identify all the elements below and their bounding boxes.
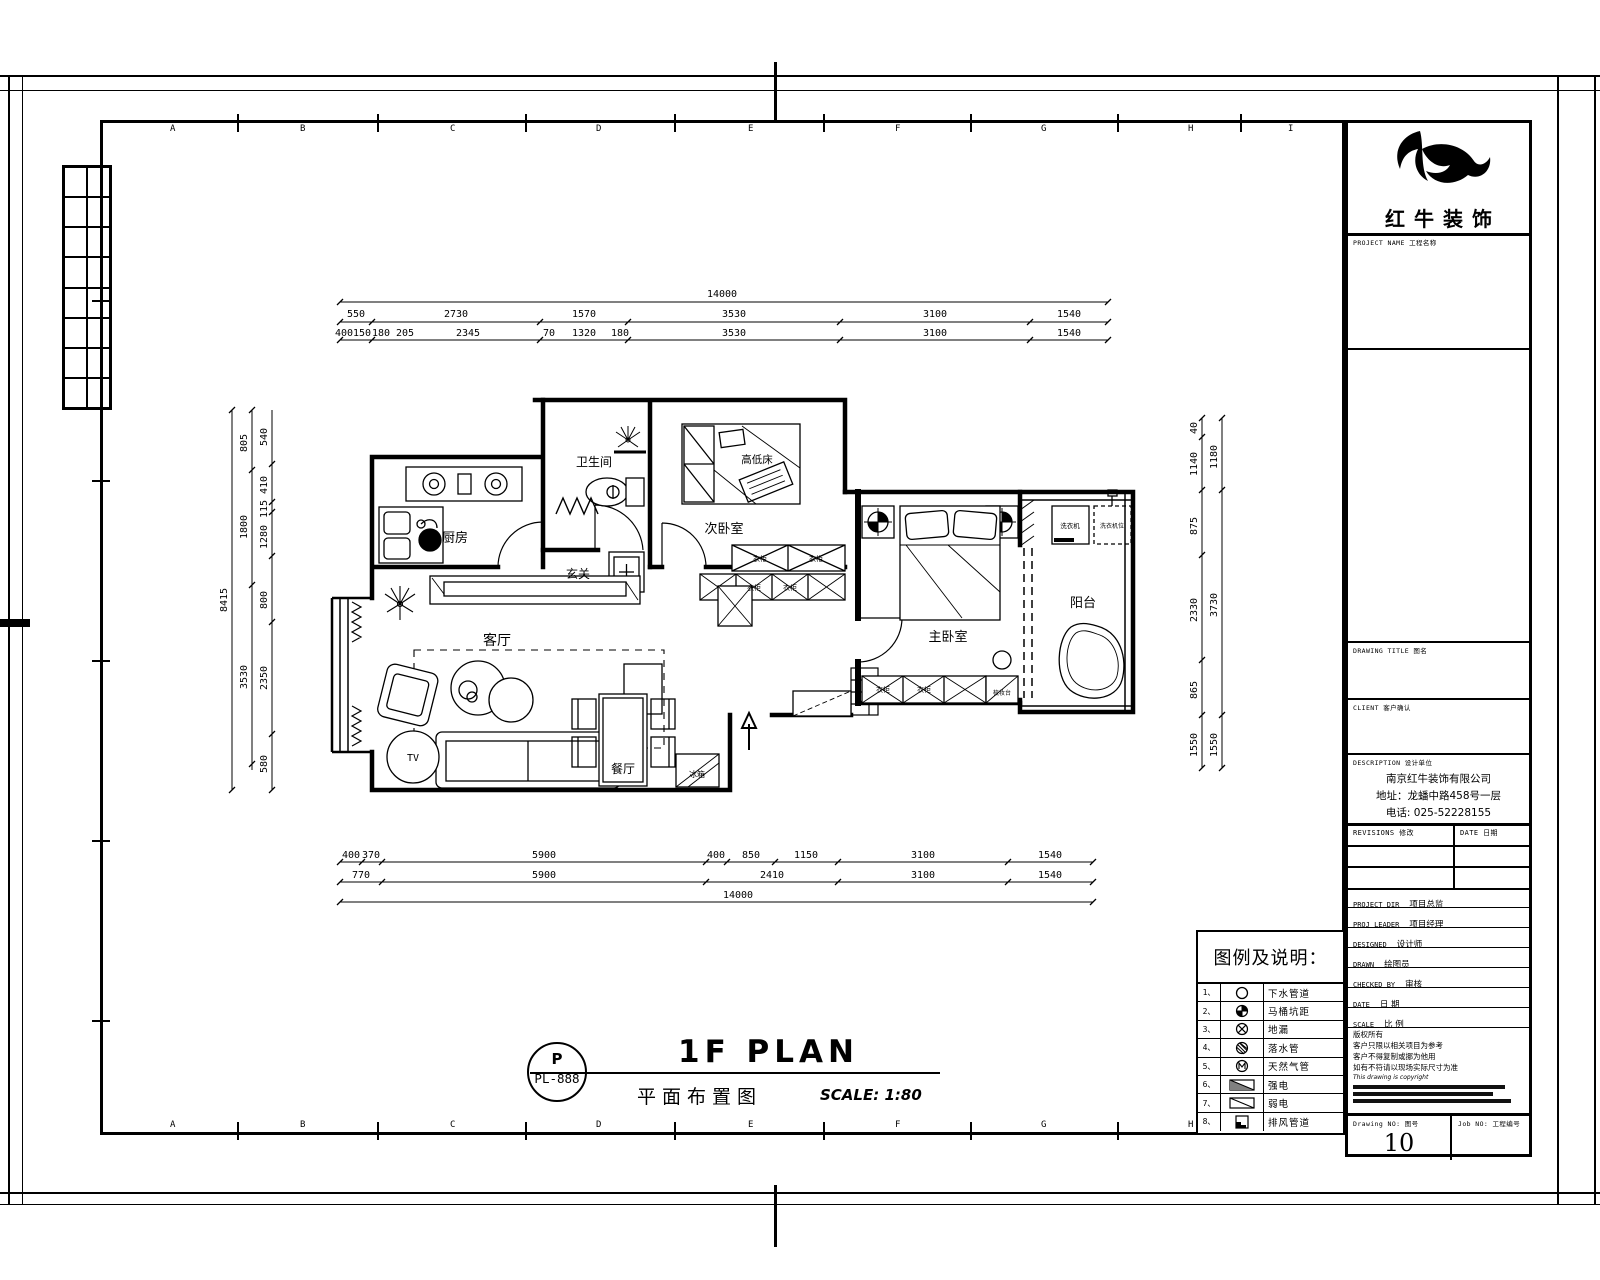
legend-row: 3、 地漏	[1198, 1021, 1343, 1039]
frame-tick	[237, 114, 239, 132]
company-logo-icon	[1380, 127, 1500, 199]
stove	[406, 467, 522, 501]
frame-tick	[674, 114, 676, 132]
dim-text: 2730	[444, 309, 468, 320]
furniture-label-bunk-bed: 高低床	[741, 453, 773, 466]
floor-plan-svg: 厨房 卫生间 玄关 次卧室 高低床 主卧室 阳台 客厅 餐厅 TV 冰箱 洗衣机…	[210, 280, 1270, 920]
trim-line-bottom-1	[0, 1192, 1600, 1194]
margin-stamp-cell	[87, 348, 110, 378]
dim-text: 2410	[760, 870, 784, 881]
legend-row-number: 3、	[1198, 1021, 1221, 1038]
room-label-bedroom2: 次卧室	[704, 521, 743, 537]
grid-letter-bottom: E	[748, 1120, 753, 1130]
copyright-redacted-line	[1353, 1092, 1493, 1096]
margin-stamp-cell	[64, 227, 87, 257]
grid-letter-top: A	[170, 124, 175, 134]
copyright-line-en: This drawing is copyright	[1353, 1074, 1529, 1083]
tb-description-label: DESCRIPTION 设计单位	[1353, 757, 1432, 767]
grid-letter-bottom: G	[1041, 1120, 1046, 1130]
shoe-cabinet	[718, 586, 752, 626]
plan-subtitle: 平面布置图	[637, 1082, 762, 1109]
info-row-en: SCALE	[1353, 1021, 1374, 1029]
title-block: 红牛装饰 PROJECT NAME 工程名称 DRAWING TITLE 图名 …	[1345, 120, 1532, 1157]
dim-text: 150	[353, 328, 371, 339]
trim-line-right-2	[1594, 75, 1596, 1205]
sofa	[436, 732, 620, 788]
dim-text: 14000	[707, 289, 737, 300]
margin-stamp-cell	[64, 167, 87, 197]
furniture-label-dresser: 梳妆台	[993, 689, 1011, 697]
grid-letter-top: H	[1188, 124, 1193, 134]
furniture	[376, 424, 1131, 788]
tb-project-name-label: PROJECT NAME 工程名称	[1353, 237, 1437, 247]
margin-stamp-cell	[87, 197, 110, 227]
dim-text: 14000	[723, 890, 753, 901]
grid-letter-top: E	[748, 124, 753, 134]
margin-stamp-cell	[87, 227, 110, 257]
room-label-dining: 餐厅	[611, 761, 635, 776]
frame-tick	[525, 1122, 527, 1140]
furniture-label-wardrobe: 衣柜	[747, 583, 761, 592]
center-mark-left	[0, 619, 30, 627]
frame-tick	[970, 1122, 972, 1140]
dim-text: 1540	[1057, 309, 1081, 320]
margin-stamp-cell	[87, 167, 110, 197]
tb-info-row: DESIGNED设计师	[1348, 928, 1529, 948]
frame-tick	[92, 1020, 110, 1022]
frame-tick	[823, 114, 825, 132]
trim-line-top-1	[0, 75, 1600, 77]
dim-text: 400	[335, 328, 353, 339]
margin-stamp-cell	[64, 197, 87, 227]
kitchen-sink	[379, 507, 443, 563]
frame-tick	[1240, 114, 1242, 132]
grid-letter-top: D	[596, 124, 601, 134]
plan-title: 1F PLAN	[678, 1034, 859, 1070]
margin-stamp-cell	[64, 318, 87, 348]
legend-row-label: 天然气管	[1264, 1059, 1343, 1073]
legend-row-label: 落水管	[1264, 1041, 1343, 1055]
downpipe-icon	[1221, 1039, 1264, 1056]
copyright-line: 客户只限以相关项目为参考	[1353, 1041, 1529, 1052]
grid-letter-bottom: A	[170, 1120, 175, 1130]
grid-letter-bottom: C	[450, 1120, 455, 1130]
legend-row-number: 5、	[1198, 1058, 1221, 1075]
frame-tick	[1117, 1122, 1119, 1140]
strong-electric-icon	[1221, 1076, 1264, 1093]
furniture-label-fridge: 冰箱	[689, 769, 705, 779]
legend-row: 6、 强电	[1198, 1076, 1343, 1094]
margin-stamp-cell	[87, 378, 110, 408]
furniture-label-tv: TV	[407, 753, 419, 764]
legend-row-label: 弱电	[1264, 1096, 1343, 1110]
legend-row-number: 1、	[1198, 984, 1221, 1001]
dim-text: 3530	[722, 328, 746, 339]
washing-machine	[1052, 490, 1131, 544]
legend-row-number: 6、	[1198, 1076, 1221, 1093]
dim-text: 400	[342, 850, 360, 861]
plan-scale: SCALE: 1:80	[820, 1086, 922, 1104]
dim-text: 2345	[456, 328, 480, 339]
lounge-chair	[1059, 624, 1124, 699]
legend-row: 5、 天然气管	[1198, 1058, 1343, 1076]
furniture-label-wardrobe: 衣柜	[753, 554, 767, 563]
center-mark-top	[774, 62, 777, 122]
dim-text: 550	[347, 309, 365, 320]
tb-drawing-no-label: Drawing NO: 图号	[1353, 1118, 1419, 1128]
legend-table: 图例及说明： 1、 下水管道 2、 马桶坑距 3、 地漏 4、 落水管 5、 天…	[1196, 930, 1345, 1135]
dim-text: 40	[1189, 422, 1200, 434]
copyright-redacted-line	[1353, 1099, 1511, 1103]
dim-text: 1800	[239, 515, 250, 539]
bottom-divider	[1450, 1113, 1452, 1160]
entry-arrow-icon	[742, 713, 756, 750]
room-label-foyer: 玄关	[566, 566, 590, 581]
tb-client-label: CLIENT 客户确认	[1353, 702, 1411, 712]
furniture-label-washer: 洗衣机	[1060, 521, 1080, 530]
weak-electric-icon	[1221, 1094, 1264, 1111]
frame-tick	[377, 114, 379, 132]
dim-text: 1280	[259, 525, 270, 549]
furniture-label-wardrobe: 衣柜	[876, 685, 890, 694]
legend-row-label: 下水管道	[1264, 986, 1343, 1000]
dim-text: 875	[1189, 517, 1200, 535]
dim-text: 3100	[911, 870, 935, 881]
legend-row: 2、 马桶坑距	[1198, 1002, 1343, 1020]
dim-text: 3100	[911, 850, 935, 861]
wardrobe-bedroom2	[732, 545, 845, 571]
legend-row: 1、 下水管道	[1198, 984, 1343, 1002]
room-label-living: 客厅	[483, 632, 511, 649]
dim-text: 3530	[239, 665, 250, 689]
dim-text: 1540	[1038, 850, 1062, 861]
dim-text: 5900	[532, 870, 556, 881]
tb-copyright: 版权所有 客户只限以相关项目为参考 客户不得复制或挪为他用 如有不符请以现场实际…	[1348, 1030, 1529, 1106]
dim-text: 800	[259, 591, 270, 609]
grid-letter-top: C	[450, 124, 455, 134]
grid-letter-top: F	[895, 124, 900, 134]
gas-pipe-icon	[1221, 1058, 1264, 1075]
dim-text: 1150	[794, 850, 818, 861]
trim-line-top-2	[0, 90, 1600, 91]
frame-tick	[674, 1122, 676, 1140]
frame-tick	[377, 1122, 379, 1140]
grid-letter-bottom: H	[1188, 1120, 1193, 1130]
dim-text: 400	[707, 850, 725, 861]
copyright-line: 版权所有	[1353, 1030, 1529, 1041]
center-mark-bottom	[774, 1185, 777, 1247]
tv-cabinet	[430, 576, 640, 604]
frame-tick	[92, 480, 110, 482]
dim-text: 865	[1189, 681, 1200, 699]
exhaust-duct-icon	[1221, 1113, 1264, 1131]
copyright-line: 如有不符请以现场实际尺寸为准	[1353, 1063, 1529, 1074]
dim-text: 1180	[1209, 445, 1220, 469]
room-label-master: 主卧室	[928, 629, 967, 645]
margin-stamp-cell	[64, 257, 87, 287]
copyright-redacted-line	[1353, 1085, 1505, 1089]
margin-stamp-cell	[87, 288, 110, 318]
furniture-label-wardrobe: 衣柜	[809, 554, 823, 563]
grid-letter-bottom: F	[895, 1120, 900, 1130]
legend-row-number: 2、	[1198, 1002, 1221, 1019]
dim-text: 1550	[1209, 733, 1220, 757]
trim-line-left-2	[22, 75, 23, 1205]
dim-text: 3100	[923, 328, 947, 339]
tb-rev-date-label: DATE 日期	[1460, 828, 1498, 838]
dim-text: 8415	[219, 588, 230, 612]
legend-row-number: 4、	[1198, 1039, 1221, 1056]
frame-tick	[525, 114, 527, 132]
company-phone: 电话: 025-52228155	[1348, 805, 1529, 820]
tb-job-no-label: Job NO: 工程编号	[1458, 1118, 1520, 1128]
bubble-code: PL-888	[529, 1071, 585, 1086]
dim-text: 180	[611, 328, 629, 339]
dim-text: 580	[259, 755, 270, 773]
dim-text: 3530	[722, 309, 746, 320]
drawing-sheet: { "sheet": { "grid_letters": ["A","B","C…	[0, 0, 1600, 1280]
legend-row: 8、 排风管道	[1198, 1113, 1343, 1131]
furniture-label-washer-spot: 洗衣机位	[1100, 522, 1124, 530]
room-label-bath: 卫生间	[576, 455, 612, 469]
grid-letter-top: G	[1041, 124, 1046, 134]
frame-tick	[1117, 114, 1119, 132]
room-label-balcony: 阳台	[1070, 596, 1096, 611]
dim-text: 370	[362, 850, 380, 861]
margin-stamp-cell	[64, 288, 87, 318]
coffee-table	[451, 661, 533, 722]
tb-info-row: PROJECT DIR项目总监	[1348, 888, 1529, 908]
legend-row-label: 强电	[1264, 1078, 1343, 1092]
trim-line-right-1	[1557, 75, 1559, 1205]
dim-text: 115	[259, 500, 270, 518]
floor-drain-icon	[1221, 1021, 1264, 1038]
grid-letter-top: B	[300, 124, 305, 134]
legend-row-number: 8、	[1198, 1113, 1221, 1131]
room-label-kitchen: 厨房	[442, 530, 468, 546]
margin-stamp-cell	[64, 378, 87, 408]
furniture-label-wardrobe: 衣柜	[783, 583, 797, 592]
tb-info-row: SCALE比 例	[1348, 1008, 1529, 1028]
radiator-zigzag	[556, 498, 598, 514]
legend-row-label: 马桶坑距	[1264, 1004, 1343, 1018]
dim-text: 205	[396, 328, 414, 339]
dim-text: 770	[352, 870, 370, 881]
toilet-pit-icon	[1221, 1002, 1264, 1019]
dim-text: 1550	[1189, 733, 1200, 757]
tb-info-row: PROJ LEADER项目经理	[1348, 908, 1529, 928]
dim-text: 410	[259, 476, 270, 494]
drain-pipe-icon	[1221, 984, 1264, 1001]
dim-text: 1540	[1057, 328, 1081, 339]
legend-row-number: 7、	[1198, 1094, 1221, 1111]
dim-text: 70	[543, 328, 555, 339]
trim-line-bottom-2	[0, 1204, 1600, 1205]
dim-text: 1540	[1038, 870, 1062, 881]
dim-text: 3100	[923, 309, 947, 320]
tb-drawing-title-label: DRAWING TITLE 图名	[1353, 645, 1427, 655]
dim-text: 5900	[532, 850, 556, 861]
dim-text: 850	[742, 850, 760, 861]
drawing-number: 10	[1348, 1129, 1450, 1157]
rev-divider	[1453, 825, 1455, 888]
double-bed	[900, 506, 1000, 620]
trim-line-left-1	[8, 75, 10, 1205]
dim-text: 2350	[259, 666, 270, 690]
frame-tick	[92, 840, 110, 842]
frame-tick	[823, 1122, 825, 1140]
legend-row: 7、 弱电	[1198, 1094, 1343, 1112]
legend-row-label: 地漏	[1264, 1022, 1343, 1036]
dim-text: 3730	[1209, 593, 1220, 617]
company-name: 南京红牛装饰有限公司	[1348, 771, 1529, 786]
entry-bench	[793, 691, 851, 716]
plant-icon	[385, 586, 415, 620]
grid-letter-bottom: B	[300, 1120, 305, 1130]
dim-text: 1570	[572, 309, 596, 320]
tb-info-row: DATE日 期	[1348, 988, 1529, 1008]
margin-stamp-cell	[64, 348, 87, 378]
margin-stamp-cell	[87, 318, 110, 348]
dim-text: 805	[239, 434, 250, 452]
legend-row: 4、 落水管	[1198, 1039, 1343, 1057]
frame-tick	[92, 660, 110, 662]
furniture-label-wardrobe: 衣柜	[917, 685, 931, 694]
frame-tick	[237, 1122, 239, 1140]
copyright-line: 客户不得复制或挪为他用	[1353, 1052, 1529, 1063]
title-underline	[530, 1072, 940, 1074]
dim-text: 1140	[1189, 452, 1200, 476]
legend-title: 图例及说明：	[1198, 932, 1343, 984]
tb-revisions-label: REVISIONS 修改	[1353, 828, 1414, 838]
legend-row-label: 排风管道	[1264, 1115, 1343, 1129]
toilet	[586, 478, 644, 506]
dim-text: 180	[372, 328, 390, 339]
margin-stamp-grid	[62, 165, 112, 410]
frame-tick	[970, 114, 972, 132]
company-address: 地址：龙蟠中路458号一层	[1348, 788, 1529, 803]
dim-text: 540	[259, 428, 270, 446]
grid-letter-bottom: D	[596, 1120, 601, 1130]
dim-text: 1320	[572, 328, 596, 339]
armchair	[376, 662, 440, 727]
plant-icon	[616, 426, 640, 447]
tb-info-row: CHECKED BY审核	[1348, 968, 1529, 988]
tb-info-row: DRAWN绘图员	[1348, 948, 1529, 968]
dim-text: 2330	[1189, 598, 1200, 622]
margin-stamp-cell	[87, 257, 110, 287]
drawing-number-bubble: P PL-888	[527, 1042, 587, 1102]
info-row-cn: 比 例	[1384, 1020, 1404, 1030]
bubble-letter: P	[529, 1050, 585, 1068]
company-logo-name: 红牛装饰	[1348, 203, 1529, 232]
grid-letter-top: I	[1288, 124, 1293, 134]
